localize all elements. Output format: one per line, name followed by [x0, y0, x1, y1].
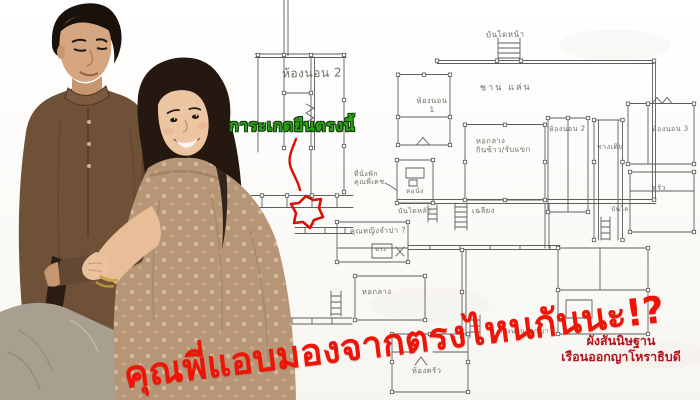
plan-credit-line1: ผังสันนิษฐาน — [543, 333, 699, 349]
plan-room-label: บันได — [611, 206, 629, 214]
plan-credit: ผังสันนิษฐาน เรือนออกญาโหราธิบดี — [543, 333, 699, 366]
plan-room-label: ห้องนอน 2 — [549, 125, 586, 134]
plan-room-label: ห้องนอน 2 — [282, 65, 342, 80]
plan-room-label: พระ — [375, 246, 387, 253]
plan-room-label: เฉลียง — [472, 206, 495, 215]
spot-annotation-text: การะเกดยืนตรงนี้ — [229, 114, 355, 139]
plan-room-label: คุณหญิงจำปา ? — [350, 226, 406, 236]
plan-room-label: บันไดหลัง — [398, 207, 431, 216]
red-star-marker — [291, 196, 323, 228]
plan-room-label: ที่นั่งพัก คุณพี่เดช — [354, 170, 385, 187]
plan-room-label: ชาน แล่น — [480, 83, 532, 95]
plan-room-label: ห้องนอน 1 — [414, 96, 450, 115]
plan-room-label: ห้องนอน 3 — [652, 125, 689, 134]
plan-credit-line2: เรือนออกญาโหราธิบดี — [543, 349, 699, 365]
red-arrow — [290, 139, 300, 190]
plan-room-label: หอกลาง — [362, 287, 392, 297]
plan-room-label: ทางเดิน — [597, 143, 624, 152]
plan-room-label: ครัว — [652, 184, 666, 193]
plan-room-label: หอกลาง กินข้าว/รับแขก — [476, 136, 531, 155]
plan-room-label: บันไดหน้า — [486, 30, 525, 40]
meme-image: ห้องนอน 2บันไดหน้าชาน แล่นห้องนอน 1หอกลา… — [0, 0, 700, 400]
plan-room-label: หอนั่ง — [406, 188, 424, 196]
